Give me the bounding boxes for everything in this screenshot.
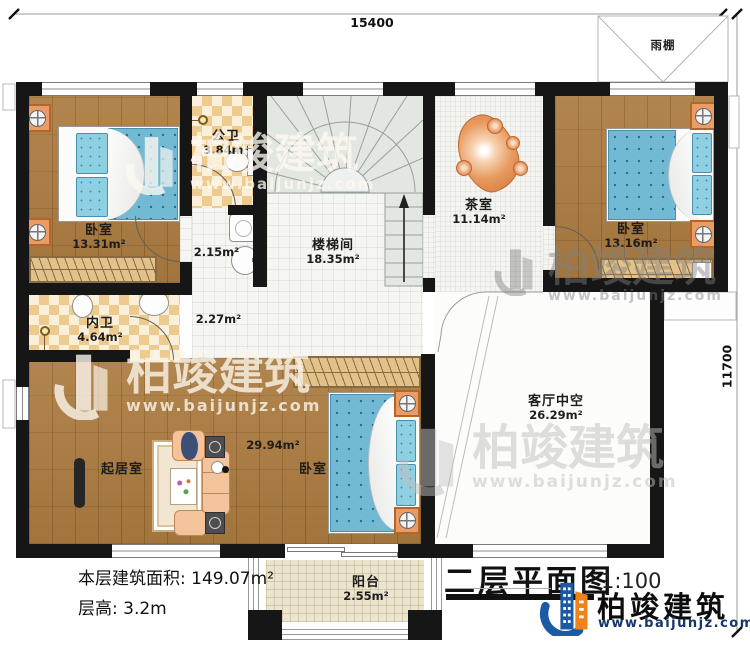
- window: [42, 82, 150, 96]
- pillow: [396, 420, 416, 462]
- side-table: [205, 436, 225, 458]
- room-label-bedroom3: 卧室: [282, 462, 344, 477]
- mattress-bedroom2: [608, 130, 676, 220]
- room-name: 雨棚: [651, 39, 676, 53]
- toilet-private-bath: [72, 294, 93, 318]
- room-name: 客厅中空: [528, 394, 584, 409]
- void-diagonal-line: [446, 296, 498, 538]
- floor-plan-canvas: 卧室 13.31m² 公卫 3.84m² 2.15m² 2.27m² 楼梯间 1…: [0, 0, 750, 648]
- wall: [220, 544, 285, 558]
- wall: [16, 420, 29, 558]
- room-label-public-bath: 公卫 3.84m²: [192, 129, 260, 158]
- brand-logo-icon: [538, 580, 594, 636]
- room-area: 13.31m²: [72, 238, 125, 252]
- pillow: [692, 175, 712, 215]
- wall: [650, 292, 664, 558]
- sofa: [202, 450, 230, 515]
- room-label-void: 客厅中空 26.29m²: [516, 394, 596, 423]
- tea-stool: [487, 118, 503, 134]
- wall: [423, 278, 435, 292]
- room-area: 3.84m²: [203, 144, 248, 158]
- window-sill-outline: [3, 84, 15, 110]
- wall: [180, 96, 192, 216]
- title-rule-thin: [445, 588, 551, 589]
- room-label-wash-nook: 2.15m²: [186, 246, 247, 260]
- decor-dot: [222, 466, 229, 473]
- lamp-icon: [695, 226, 712, 243]
- window-sill-outline: [3, 380, 15, 428]
- room-area: 2.27m²: [196, 313, 241, 327]
- room-area: 29.94m²: [246, 439, 299, 453]
- room-area: 11.14m²: [452, 213, 505, 227]
- window: [112, 544, 220, 558]
- roof-ledge-outline: [664, 292, 736, 320]
- staircase: [267, 96, 423, 358]
- wall: [253, 96, 267, 287]
- wall: [421, 354, 435, 544]
- wall: [543, 270, 555, 292]
- wall: [16, 283, 192, 295]
- room-area: 18.35m²: [306, 253, 359, 267]
- sliding-door-panel: [287, 547, 345, 552]
- balcony-post: [248, 610, 282, 640]
- void-boundary-line: [438, 292, 543, 352]
- pillow: [396, 464, 416, 506]
- lamp-icon: [695, 108, 712, 125]
- armchair: [174, 510, 207, 536]
- tv: [74, 458, 85, 508]
- wall: [16, 544, 112, 558]
- room-name: 公卫: [212, 129, 240, 144]
- window: [455, 82, 535, 96]
- wall: [553, 278, 728, 292]
- light-icon: [40, 326, 50, 336]
- lamp-icon: [399, 395, 416, 412]
- room-label-hallway: 2.27m²: [188, 313, 249, 327]
- room-name: 阳台: [352, 575, 380, 590]
- wall: [535, 82, 610, 96]
- wall: [543, 96, 555, 226]
- void-diagonal-line: [437, 296, 489, 538]
- brand-url: www.baijunjz.com: [598, 616, 750, 631]
- wardrobe-bedroom3: [293, 356, 421, 388]
- wall: [423, 96, 435, 215]
- room-name: 卧室: [85, 223, 113, 238]
- room-name: 卧室: [299, 462, 327, 477]
- sliding-door-panel: [341, 552, 398, 557]
- window: [16, 387, 29, 420]
- room-label-bedroom1: 卧室 13.31m²: [64, 223, 134, 252]
- window: [197, 82, 243, 96]
- room-area-bedroom3: 29.94m²: [244, 439, 302, 453]
- nightstand: [690, 220, 716, 248]
- room-name: 茶室: [465, 198, 493, 213]
- coffee-table: [170, 468, 197, 505]
- wall: [150, 82, 197, 96]
- wall: [383, 82, 455, 96]
- nightstand: [690, 102, 716, 130]
- light-icon: [198, 115, 208, 125]
- room-label-living-room: 起居室: [88, 462, 156, 477]
- nightstand: [394, 507, 420, 534]
- window: [303, 82, 383, 96]
- lamp-icon: [29, 224, 46, 241]
- window-sill-outline: [729, 96, 739, 148]
- room-label-tea-room: 茶室 11.14m²: [444, 198, 514, 227]
- balcony-post: [408, 610, 442, 640]
- tea-stool: [513, 161, 528, 176]
- floor-area-text: 本层建筑面积: 149.07m²: [78, 564, 274, 589]
- room-name: 楼梯间: [312, 238, 354, 253]
- side-table: [205, 512, 225, 534]
- wall: [243, 82, 303, 96]
- washing-machine-drum-icon: [235, 220, 252, 237]
- dimension-height: 11700: [720, 337, 735, 397]
- wardrobe-bedroom1: [29, 256, 157, 283]
- room-name: 内卫: [86, 316, 114, 331]
- wall: [228, 205, 253, 215]
- tea-stool: [456, 160, 472, 176]
- room-name: 起居室: [101, 462, 143, 477]
- wall: [16, 82, 29, 387]
- wall: [714, 82, 728, 292]
- room-label-canopy: 雨棚: [630, 39, 696, 53]
- lamp-icon: [29, 110, 46, 127]
- lamp-icon: [399, 512, 416, 529]
- pillow: [692, 133, 712, 173]
- room-label-bedroom2: 卧室 13.16m²: [596, 222, 666, 251]
- pillow: [76, 133, 108, 174]
- room-label-balcony: 阳台 2.55m²: [331, 575, 401, 604]
- pillow: [76, 177, 108, 217]
- dimension-width: 15400: [340, 15, 404, 30]
- tea-stool: [506, 136, 520, 150]
- room-area: 4.64m²: [77, 331, 122, 345]
- person-figure: [181, 432, 198, 460]
- wall: [16, 350, 130, 362]
- floor-height-text: 层高: 3.2m: [78, 594, 167, 619]
- room-name: 卧室: [617, 222, 645, 237]
- room-label-stair-hall: 楼梯间 18.35m²: [297, 238, 369, 267]
- room-area: 13.16m²: [604, 237, 657, 251]
- room-label-private-bath: 内卫 4.64m²: [65, 316, 135, 345]
- room-area: 26.29m²: [529, 409, 582, 423]
- nightstand: [394, 390, 420, 417]
- room-area: 2.55m²: [343, 590, 388, 604]
- window: [610, 82, 695, 96]
- room-area: 2.15m²: [194, 246, 239, 260]
